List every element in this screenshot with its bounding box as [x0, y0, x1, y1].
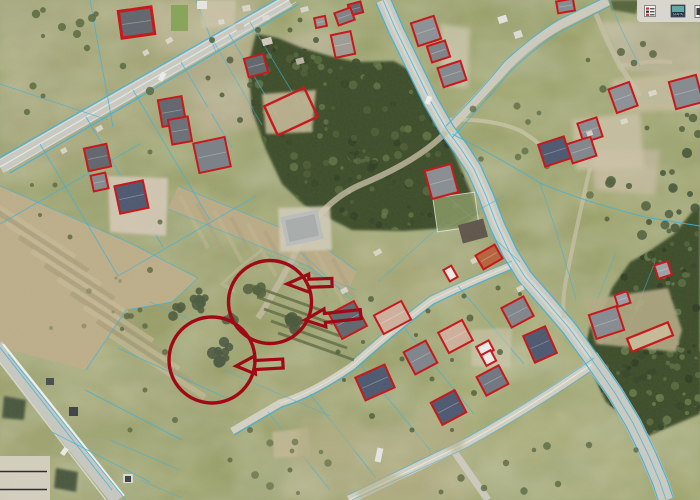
svg-text:MAPA: MAPA — [673, 13, 683, 17]
